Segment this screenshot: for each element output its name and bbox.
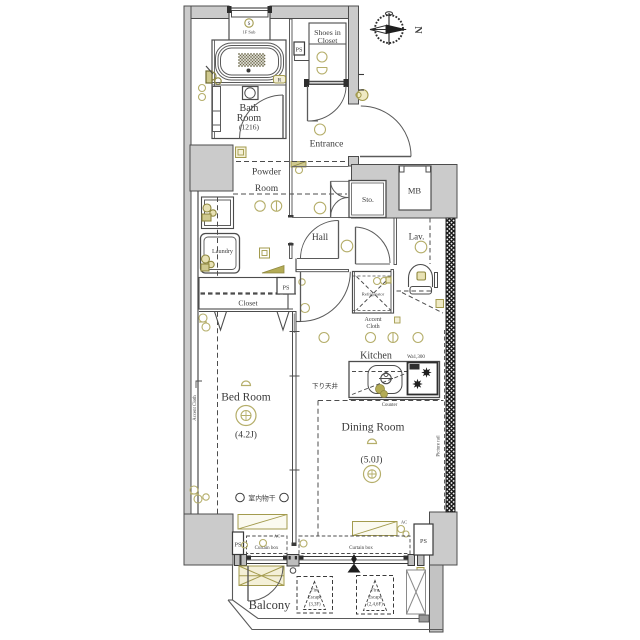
svg-text:Powder: Powder [252,168,282,178]
svg-text:Fire: Fire [371,589,379,594]
svg-text:Kitchen: Kitchen [360,351,392,362]
svg-text:Refrigerator: Refrigerator [362,292,385,297]
svg-text:PS: PS [420,538,427,545]
svg-text:Bed Room: Bed Room [221,392,271,404]
svg-text:Escape: Escape [368,596,382,601]
svg-text:室内物干: 室内物干 [248,494,275,503]
svg-text:Entrance: Entrance [310,140,344,150]
svg-text:Accent Cloth: Accent Cloth [193,395,198,421]
svg-text:Lav.: Lav. [409,232,425,242]
svg-text:Laundry: Laundry [212,248,234,255]
svg-text:(3,3F): (3,3F) [309,603,321,608]
svg-text:Fire: Fire [311,589,319,594]
svg-text:Wa1,300: Wa1,300 [407,355,425,360]
svg-text:MB: MB [408,186,422,196]
svg-text:Escape: Escape [308,596,322,601]
svg-text:S: S [248,22,251,27]
svg-text:Curtain box: Curtain box [255,546,279,551]
svg-text:PS: PS [283,285,290,292]
svg-text:N: N [412,26,423,34]
svg-text:PS: PS [296,47,303,54]
svg-text:Balcony: Balcony [249,598,291,612]
svg-text:(2,4,6F): (2,4,6F) [367,603,383,608]
svg-text:PS: PS [235,542,242,549]
svg-text:(5.0J): (5.0J) [361,455,383,466]
svg-text:AC: AC [401,520,407,525]
svg-text:1F Sub: 1F Sub [243,30,257,35]
svg-text:Picture rail: Picture rail [437,435,442,457]
svg-text:Cloth: Cloth [366,324,379,330]
svg-text:Curtain box: Curtain box [349,546,373,551]
svg-text:(4.2J): (4.2J) [235,430,257,441]
svg-text:Sto.: Sto. [362,195,374,204]
svg-text:Counter: Counter [382,403,398,408]
svg-text:Hall: Hall [312,233,329,243]
svg-text:Accent: Accent [365,317,382,323]
svg-text:Room: Room [255,184,279,194]
svg-text:下り天井: 下り天井 [312,381,339,390]
svg-text:Closet: Closet [318,36,339,45]
svg-text:R: R [278,78,282,84]
svg-text:Closet: Closet [238,299,258,308]
svg-text:Dining Room: Dining Room [342,422,405,434]
